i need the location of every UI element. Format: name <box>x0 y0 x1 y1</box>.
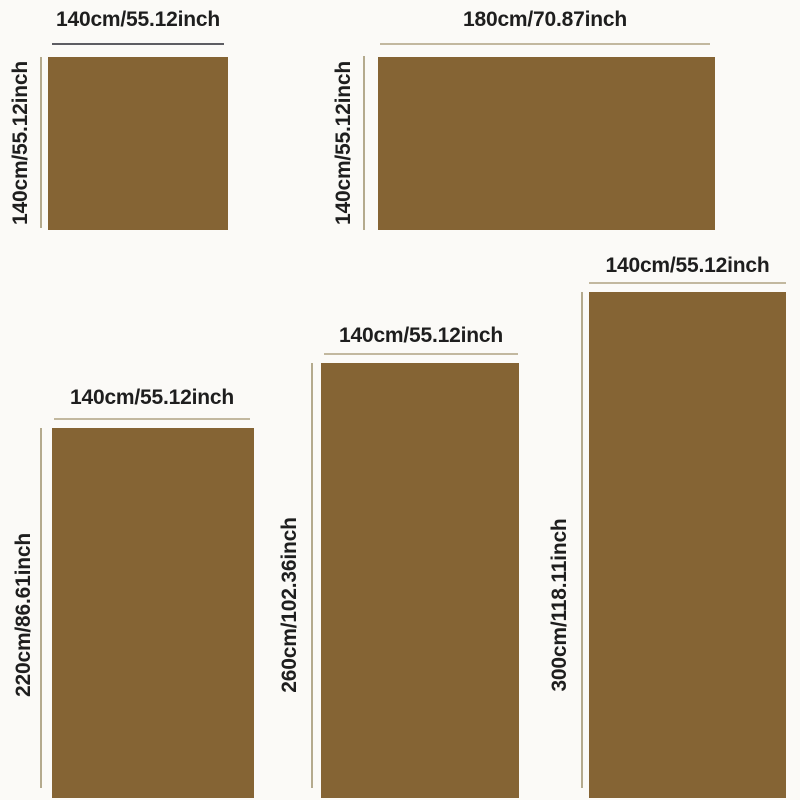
width-dimension-label: 180cm/70.87inch <box>380 6 710 34</box>
fabric-swatch <box>52 428 254 798</box>
width-dimension-label: 140cm/55.12inch <box>589 252 786 280</box>
width-measure-line <box>589 282 786 284</box>
width-measure-line <box>54 418 250 420</box>
fabric-swatch <box>48 57 228 230</box>
height-dimension-label: 140cm/55.12inch <box>332 61 356 225</box>
width-dimension-label: 140cm/55.12inch <box>324 322 518 350</box>
width-measure-line <box>52 43 224 45</box>
width-dimension-label: 140cm/55.12inch <box>52 6 224 34</box>
height-measure-line <box>581 292 583 788</box>
fabric-swatch <box>378 57 715 230</box>
height-dimension-label: 300cm/118.11inch <box>548 518 572 691</box>
height-measure-line <box>40 57 42 228</box>
height-measure-line <box>40 428 42 788</box>
height-dimension-label: 220cm/86.61inch <box>12 533 36 697</box>
width-measure-line <box>380 43 710 45</box>
height-measure-line <box>311 363 313 788</box>
fabric-swatch <box>589 292 786 798</box>
height-dimension-label: 260cm/102.36inch <box>278 517 302 692</box>
height-measure-line <box>363 56 365 230</box>
width-dimension-label: 140cm/55.12inch <box>54 384 250 412</box>
width-measure-line <box>324 353 518 355</box>
fabric-swatch <box>321 363 519 798</box>
height-dimension-label: 140cm/55.12inch <box>9 61 33 225</box>
